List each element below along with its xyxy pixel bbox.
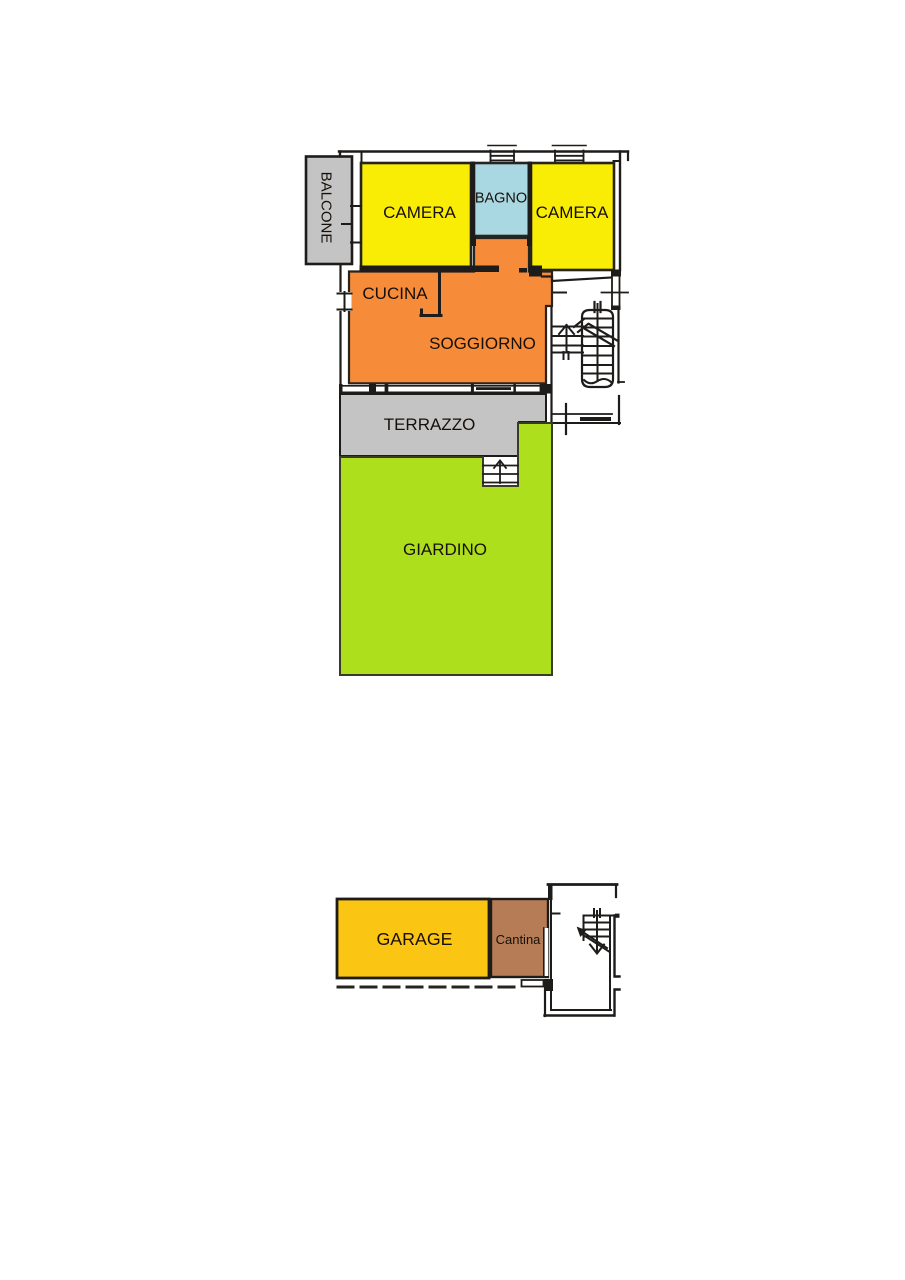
svg-text:CAMERA: CAMERA xyxy=(383,203,456,222)
svg-text:BALCONE: BALCONE xyxy=(318,172,335,244)
svg-text:TERRAZZO: TERRAZZO xyxy=(384,415,476,434)
svg-text:GARAGE: GARAGE xyxy=(376,929,452,949)
svg-text:Cantina: Cantina xyxy=(496,932,542,947)
svg-text:BAGNO: BAGNO xyxy=(475,191,527,207)
svg-text:SOGGIORNO: SOGGIORNO xyxy=(429,334,536,353)
svg-text:GIARDINO: GIARDINO xyxy=(403,540,487,559)
svg-text:CAMERA: CAMERA xyxy=(536,203,609,222)
svg-text:CUCINA: CUCINA xyxy=(362,284,428,303)
